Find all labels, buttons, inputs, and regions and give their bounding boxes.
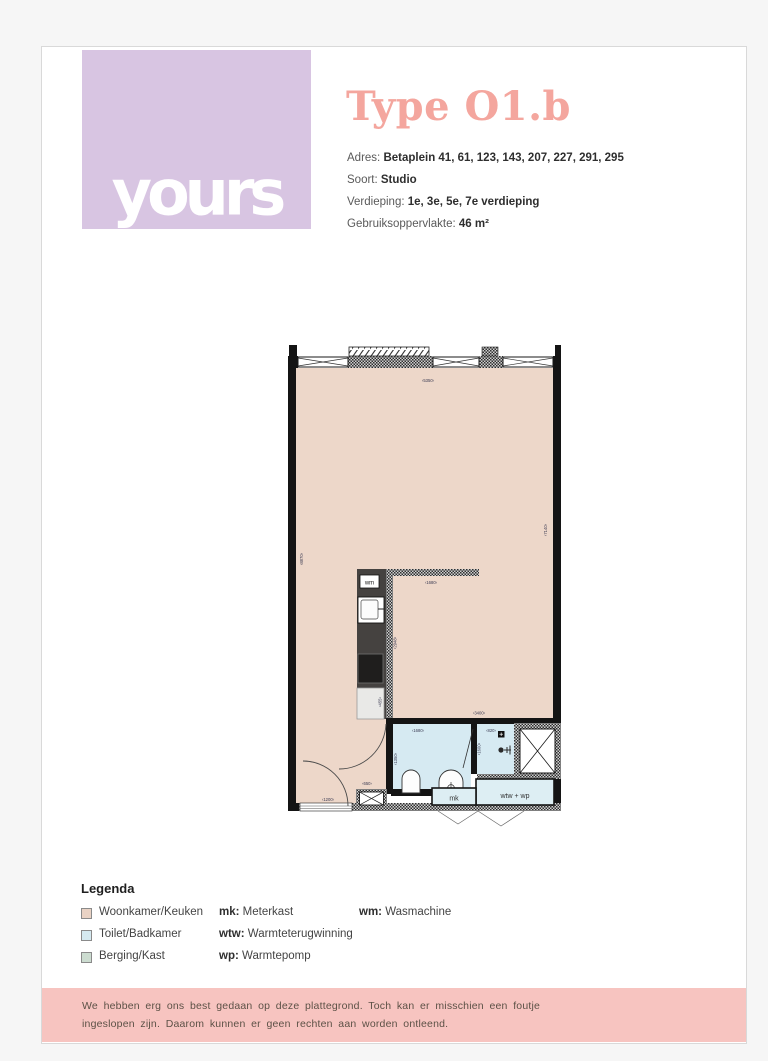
dim-counter: ‹455› bbox=[378, 697, 383, 707]
wall-bottom-corner bbox=[288, 803, 299, 811]
swatch-berging bbox=[81, 952, 92, 963]
shower-valve bbox=[498, 747, 503, 752]
mk-label: mk bbox=[449, 796, 459, 803]
disclaimer-banner: We hebben erg ons best gedaan op deze pl… bbox=[42, 988, 746, 1042]
wall-bath-left bbox=[386, 724, 393, 794]
sink-basin bbox=[361, 600, 378, 619]
toilet bbox=[402, 770, 420, 793]
room-woonkamer bbox=[296, 368, 553, 718]
legend-abbr-mk: mk: Meterkast bbox=[219, 906, 293, 918]
legend-room-toilet: Toilet/Badkamer bbox=[99, 928, 181, 940]
dim-hall-door: ‹650› bbox=[362, 781, 372, 786]
wall-left bbox=[288, 356, 296, 803]
wall-pier-1 bbox=[348, 356, 433, 368]
floor-plan: wm ‹455› mk wtw + wp bbox=[286, 341, 576, 831]
washer-label: wm bbox=[364, 581, 374, 587]
meta-adres: Adres: Betaplein 41, 61, 123, 143, 207, … bbox=[347, 147, 624, 169]
document-page: yours Type O1.b Adres: Betaplein 41, 61,… bbox=[41, 46, 747, 1044]
legend-room-woonkamer: Woonkamer/Keuken bbox=[99, 906, 203, 918]
cooktop bbox=[358, 654, 383, 683]
dim-kitchen-wall-v: ‹2948› bbox=[393, 636, 398, 649]
dim-entrance: ‹1200› bbox=[322, 797, 335, 802]
meta-soort: Soort: Studio bbox=[347, 169, 624, 191]
legend-abbr-wp: wp: Warmtepomp bbox=[219, 950, 311, 962]
yours-logo: yours bbox=[82, 50, 311, 229]
apartment-meta: Adres: Betaplein 41, 61, 123, 143, 207, … bbox=[347, 147, 624, 235]
floor-plan-drawing: wm ‹455› mk wtw + wp bbox=[286, 341, 576, 831]
meta-verdieping: Verdieping: 1e, 3e, 5e, 7e verdieping bbox=[347, 191, 624, 213]
dim-bath-depth: ‹1350› bbox=[393, 752, 398, 765]
wall-stub-topleft bbox=[289, 345, 297, 356]
logo-wordmark: yours bbox=[112, 164, 282, 224]
dim-bath-top: ‹3400› bbox=[473, 711, 486, 716]
wall-top-left bbox=[288, 356, 298, 368]
legend-abbr-wm: wm: Wasmachine bbox=[359, 906, 451, 918]
wall-stub-pier2 bbox=[482, 347, 498, 356]
dim-kitchen-wall: ‹1680› bbox=[425, 580, 438, 585]
meta-oppervlakte: Gebruiksoppervlakte: 46 m² bbox=[347, 213, 624, 235]
wtw-wp-label: wtw + wp bbox=[500, 793, 530, 800]
door-swings-bottom bbox=[438, 811, 524, 826]
dim-shower-width: ‹820› bbox=[486, 728, 496, 733]
dim-shower-depth: ‹1600› bbox=[477, 742, 482, 755]
wall-pier-2 bbox=[479, 356, 503, 368]
room-wtw-wp bbox=[476, 779, 554, 805]
swatch-woonkamer bbox=[81, 908, 92, 919]
legend-heading: Legenda bbox=[81, 881, 134, 896]
disclaimer-line1: We hebben erg ons best gedaan op deze pl… bbox=[82, 998, 746, 1016]
wall-kitchen-horizontal bbox=[386, 569, 479, 576]
page-title: Type O1.b bbox=[346, 83, 571, 130]
dim-right: ‹7140› bbox=[543, 523, 548, 536]
swatch-toilet bbox=[81, 930, 92, 941]
legend-abbr-wtw: wtw: Warmteterugwinning bbox=[219, 928, 353, 940]
wall-stub-topright bbox=[555, 345, 561, 356]
disclaimer-line2: ingeslopen zijn. Daarom kunnen er geen r… bbox=[82, 1016, 746, 1034]
dim-top: ‹5350› bbox=[422, 378, 435, 383]
overhang-hatch bbox=[349, 347, 429, 356]
entrance-threshold bbox=[300, 803, 352, 811]
legend-room-berging: Berging/Kast bbox=[99, 950, 165, 962]
dim-bath-width: ‹1680› bbox=[412, 728, 425, 733]
dim-left: ‹8870› bbox=[299, 552, 304, 565]
